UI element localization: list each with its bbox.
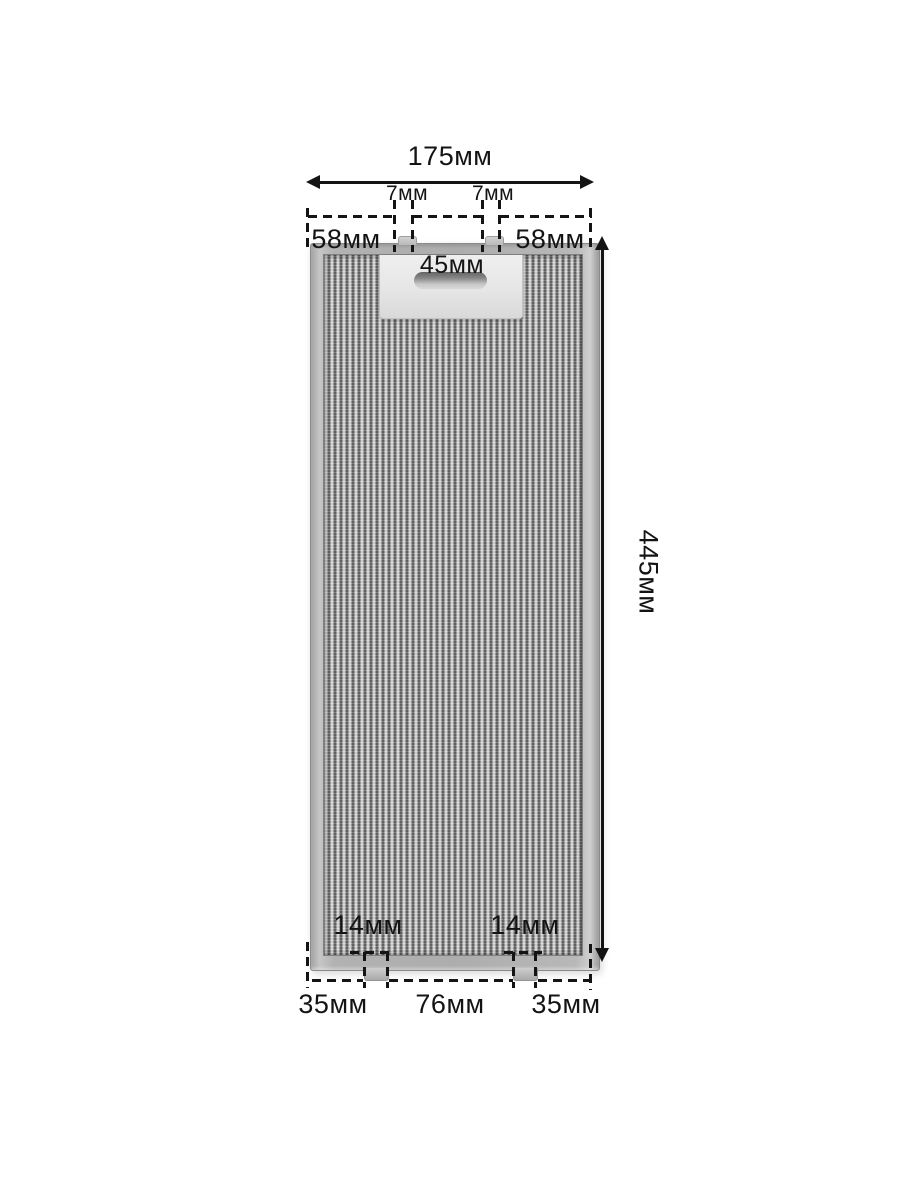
extension-line-top-center	[413, 215, 483, 218]
extension-line-top-left	[308, 215, 395, 218]
height-dimension-arrow	[594, 238, 610, 960]
tab-width-line-left	[350, 951, 390, 954]
extension-tick-tabL-right	[411, 200, 414, 252]
dim-label-top-offset-right: 58мм	[514, 226, 586, 253]
dim-label-top-tab-left: 7мм	[377, 183, 437, 204]
extension-tick-bottom-edge-right	[589, 944, 592, 990]
extension-tick-tabR-right	[498, 200, 501, 252]
extension-line-bottom-center	[389, 979, 513, 982]
extension-line-top-right	[500, 215, 592, 218]
arrow-head-up-icon	[595, 236, 609, 250]
extension-tick-btabR-right	[534, 952, 537, 988]
arrow-head-down-icon	[595, 948, 609, 962]
dim-label-handle-width: 45мм	[416, 253, 488, 278]
arrow-shaft	[601, 240, 604, 958]
extension-tick-btabR-left	[512, 952, 515, 988]
dim-label-height: 445мм	[633, 530, 664, 615]
dim-label-bottom-tab-right: 14мм	[489, 912, 561, 939]
dim-label-bottom-offset-left: 35мм	[297, 991, 369, 1018]
width-dimension-arrow	[308, 174, 592, 190]
diagram-canvas: 175мм 7мм 7мм 58мм 58мм 45мм 445мм 14мм …	[0, 0, 900, 1200]
dim-label-bottom-center: 76мм	[414, 991, 486, 1018]
extension-tick-tabL-left	[393, 200, 396, 252]
extension-tick-btabL-right	[386, 952, 389, 988]
mount-tab-top-right	[485, 236, 504, 245]
dim-label-top-tab-right: 7мм	[463, 183, 523, 204]
dim-label-total-width: 175мм	[358, 143, 542, 170]
arrow-shaft	[310, 181, 590, 184]
filter-mesh	[323, 254, 583, 956]
extension-tick-btabL-left	[363, 952, 366, 988]
extension-line-bottom-right	[538, 979, 590, 982]
arrow-head-left-icon	[306, 175, 320, 189]
dim-label-bottom-tab-left: 14мм	[332, 912, 404, 939]
dim-label-top-offset-left: 58мм	[310, 226, 382, 253]
extension-tick-top-edge-right	[589, 208, 592, 252]
mount-tab-top-left	[398, 236, 417, 245]
extension-line-bottom-left	[312, 979, 363, 982]
extension-tick-tabR-left	[481, 200, 484, 252]
dim-label-bottom-offset-right: 35мм	[530, 991, 602, 1018]
extension-tick-top-edge-left	[306, 208, 309, 252]
filter-frame	[310, 243, 600, 971]
extension-tick-bottom-edge-left	[306, 942, 309, 988]
arrow-head-right-icon	[580, 175, 594, 189]
